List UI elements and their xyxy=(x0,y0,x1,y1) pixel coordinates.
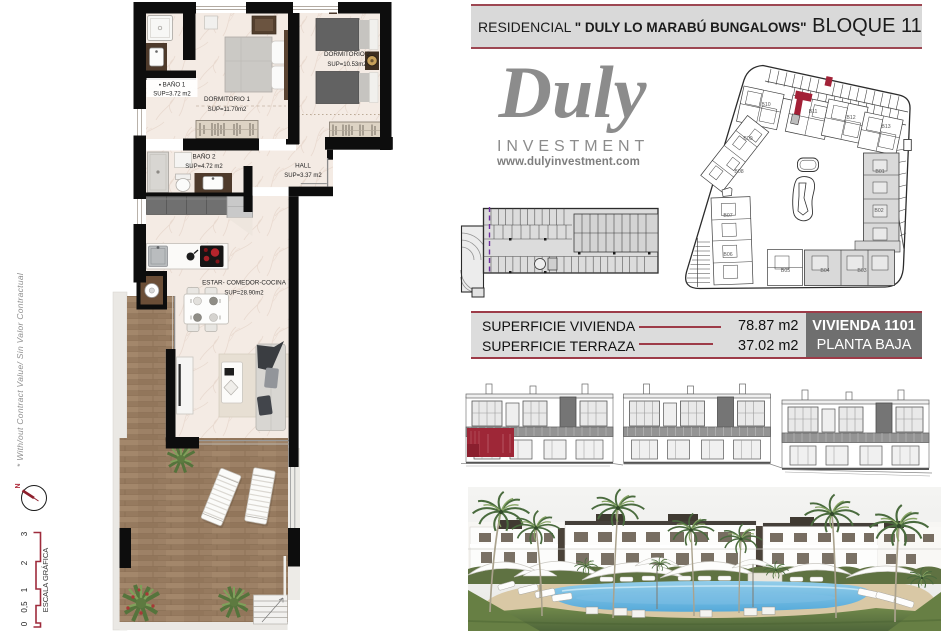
svg-text:B06: B06 xyxy=(723,252,732,258)
svg-text:B07: B07 xyxy=(723,213,732,219)
svg-text:B10: B10 xyxy=(761,102,770,108)
svg-text:SUP=4.72 m2: SUP=4.72 m2 xyxy=(185,164,223,170)
svg-text:B02: B02 xyxy=(874,208,883,214)
svg-text:B01: B01 xyxy=(875,169,884,175)
svg-text:SUP=28.90m2: SUP=28.90m2 xyxy=(224,291,264,297)
svg-text:0,5: 0,5 xyxy=(20,601,29,613)
svg-text:SUP=10.53m2: SUP=10.53m2 xyxy=(327,62,367,68)
svg-text:B04: B04 xyxy=(820,268,829,274)
svg-text:* With/out Contract Value/ Sin: * With/out Contract Value/ Sin Valor Con… xyxy=(15,272,25,467)
svg-text:▪ BAÑO 1: ▪ BAÑO 1 xyxy=(159,82,186,89)
svg-text:SUP=11.70m2: SUP=11.70m2 xyxy=(208,107,247,113)
svg-text:DORMITORIO 1: DORMITORIO 1 xyxy=(204,96,251,103)
svg-text:B12: B12 xyxy=(846,115,855,121)
svg-text:B09: B09 xyxy=(743,136,752,142)
svg-text:DORMITORIO 2: DORMITORIO 2 xyxy=(324,51,371,58)
svg-text:3: 3 xyxy=(20,531,29,536)
svg-text:B05: B05 xyxy=(781,268,790,274)
svg-text:SUP=3.37 m2: SUP=3.37 m2 xyxy=(284,173,322,179)
svg-text:ESCALA GRÁFICA: ESCALA GRÁFICA xyxy=(41,548,50,613)
svg-text:ESTAR- COMEDOR-COCINA: ESTAR- COMEDOR-COCINA xyxy=(202,280,287,287)
svg-text:0: 0 xyxy=(20,621,29,626)
svg-text:2: 2 xyxy=(20,560,29,565)
svg-text:B08: B08 xyxy=(734,169,743,175)
svg-text:HALL: HALL xyxy=(295,163,311,170)
svg-text:B03: B03 xyxy=(857,268,866,274)
svg-text:B11: B11 xyxy=(809,109,818,115)
svg-text:1: 1 xyxy=(20,587,29,592)
svg-text:BAÑO 2: BAÑO 2 xyxy=(192,152,216,161)
svg-text:B13: B13 xyxy=(881,124,890,130)
svg-text:N: N xyxy=(15,483,22,488)
svg-text:SUP=3.72 m2: SUP=3.72 m2 xyxy=(153,92,191,98)
